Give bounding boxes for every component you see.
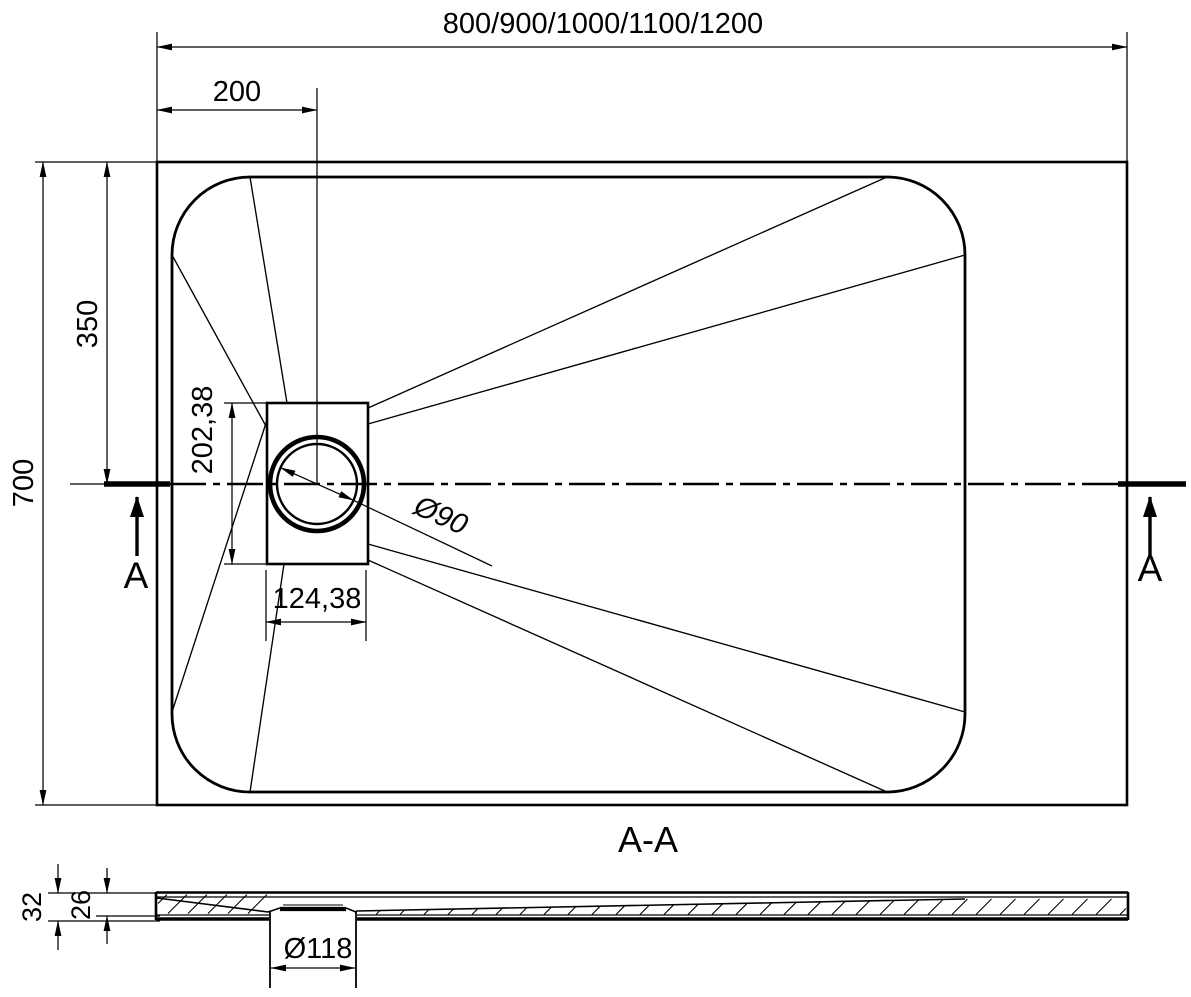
hatch-line: [952, 899, 968, 915]
hatch-line: [712, 904, 723, 915]
hatch-line: [688, 904, 698, 914]
hatch-line: [496, 908, 502, 914]
hatch-line: [520, 908, 527, 915]
hatch-line: [664, 905, 674, 915]
depth-dimension: 700: [8, 459, 40, 507]
hatch-line: [856, 901, 870, 915]
hatch-line: [832, 901, 845, 914]
total-height-dimension: 32: [17, 892, 47, 922]
hatch-line: [592, 906, 600, 914]
section-floor-slope-right: [356, 899, 965, 911]
hatch-line: [544, 907, 551, 914]
drain-center-dimension: 350: [72, 300, 104, 348]
hatch-line: [784, 902, 796, 914]
rim-height-dimension: 26: [66, 890, 96, 920]
recess-ramp-right: [346, 908, 356, 912]
hatch-line: [1048, 899, 1064, 915]
drain-box-height-dimension: 202,38: [187, 386, 219, 475]
hatch-line: [760, 903, 772, 915]
fold-line: [368, 560, 887, 792]
dimensions: 800/900/1000/1100/1200 200 700 350 202,3…: [8, 8, 1127, 805]
section-title: A-A: [618, 819, 678, 860]
section-label-left: A: [124, 555, 149, 596]
drain-diameter-label: Ø90: [408, 490, 472, 542]
hatch-line: [928, 899, 943, 914]
drain-box-width-dimension: 124,38: [273, 583, 362, 615]
hatch-line: [640, 905, 649, 914]
hatch-line: [1096, 899, 1112, 915]
technical-drawing-svg: A A Ø90 800/900/1000/1100/1200 200 700 3…: [0, 0, 1191, 997]
hatch-line: [1000, 899, 1016, 915]
hatch-line: [808, 902, 821, 915]
drawing-canvas: A A Ø90 800/900/1000/1100/1200 200 700 3…: [0, 0, 1191, 997]
waste-hole-dimension: Ø118: [284, 933, 353, 965]
fold-line: [368, 544, 965, 712]
top-view: A A Ø90: [70, 162, 1186, 805]
hatch-line: [976, 899, 992, 915]
hatch-line: [736, 903, 747, 914]
fold-line: [250, 177, 287, 403]
hatch-line: [1120, 909, 1126, 915]
hatch-line: [880, 900, 894, 914]
hatch-line: [616, 906, 625, 915]
fold-line: [368, 255, 965, 424]
section-view: A-A Ø118 32 26: [17, 819, 1128, 988]
fold-line: [368, 177, 887, 408]
hatch-line: [568, 907, 576, 915]
section-label-right: A: [1138, 548, 1163, 589]
drain-offset-dimension: 200: [213, 76, 261, 108]
hatch-line: [904, 900, 919, 915]
length-dimension: 800/900/1000/1100/1200: [443, 8, 763, 40]
hatch-line: [1072, 899, 1088, 915]
hatch-line: [1024, 899, 1040, 915]
